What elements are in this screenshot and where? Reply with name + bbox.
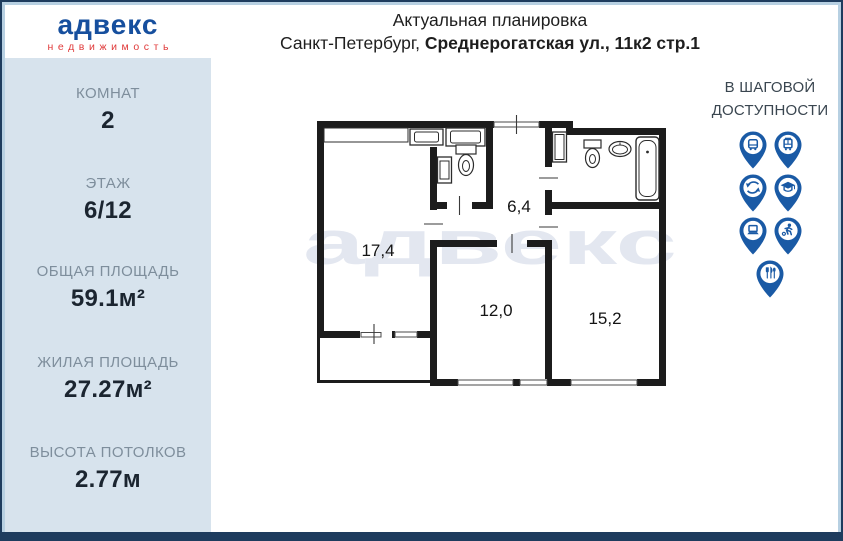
stat-total-area-label: ОБЩАЯ ПЛОЩАДЬ xyxy=(5,263,211,280)
toilet-symbol xyxy=(584,140,601,168)
logo-subtitle-text: недвижимость xyxy=(5,41,211,53)
address-line: Санкт-Петербург, Среднерогатская ул., 11… xyxy=(225,33,755,54)
stat-living-area: ЖИЛАЯ ПЛОЩАДЬ 27.27м² xyxy=(5,354,211,404)
tram-icon xyxy=(772,130,804,170)
stat-floor-value: 6/12 xyxy=(5,197,211,225)
stat-ceiling-height: ВЫСОТА ПОТОЛКОВ 2.77м xyxy=(5,444,211,494)
washing-machine-symbol xyxy=(438,157,452,183)
address-street: Среднерогатская ул., 11к2 стр.1 xyxy=(425,33,700,53)
page-title: Актуальная планировка xyxy=(230,10,750,31)
hall-area-label: 6,4 xyxy=(507,197,531,216)
stat-rooms-value: 2 xyxy=(5,107,211,135)
nearby-title-line2: ДОСТУПНОСТИ xyxy=(712,99,829,122)
sidebar: адвекс недвижимость КОМНАТ 2 ЭТАЖ 6/12 О… xyxy=(5,5,211,534)
logo-brand-text: адвекс xyxy=(5,11,211,39)
pin-row xyxy=(754,259,786,299)
stat-ceiling-height-value: 2.77м xyxy=(5,466,211,494)
laptop-icon xyxy=(737,216,769,256)
nearby-title: В ШАГОВОЙ ДОСТУПНОСТИ xyxy=(712,76,829,122)
address-city: Санкт-Петербург, xyxy=(280,33,425,53)
room2-area-label: 12,0 xyxy=(479,301,512,320)
bottom-accent-bar xyxy=(2,532,841,539)
school-icon xyxy=(772,173,804,213)
room1-area-label: 17,4 xyxy=(361,241,394,260)
stat-total-area-value: 59.1м² xyxy=(5,285,211,313)
floorplan: адвекс xyxy=(300,112,680,395)
bus-icon xyxy=(737,130,769,170)
stat-living-area-value: 27.27м² xyxy=(5,376,211,404)
room3-area-label: 15,2 xyxy=(588,309,621,328)
stat-living-area-label: ЖИЛАЯ ПЛОЩАДЬ xyxy=(5,354,211,371)
pin-row xyxy=(737,173,804,213)
wardrobe-symbol xyxy=(410,129,443,145)
wardrobe-symbol xyxy=(446,128,485,146)
stat-floor: ЭТАЖ 6/12 xyxy=(5,175,211,225)
stat-total-area: ОБЩАЯ ПЛОЩАДЬ 59.1м² xyxy=(5,263,211,313)
stat-rooms-label: КОМНАТ xyxy=(5,85,211,102)
metro-icon xyxy=(737,173,769,213)
pin-row xyxy=(737,130,804,170)
restaurant-icon xyxy=(754,259,786,299)
nearby-section: В ШАГОВОЙ ДОСТУПНОСТИ xyxy=(700,76,840,299)
cabinet-symbol xyxy=(553,132,567,162)
nearby-title-line1: В ШАГОВОЙ xyxy=(712,76,829,99)
balcony-outline xyxy=(319,338,435,382)
stat-floor-label: ЭТАЖ xyxy=(5,175,211,192)
sports-icon xyxy=(772,216,804,256)
bathtub-symbol xyxy=(636,137,659,200)
closet-strip-symbol xyxy=(324,128,408,142)
logo: адвекс недвижимость xyxy=(5,5,211,58)
sink-symbol xyxy=(609,142,631,157)
stat-ceiling-height-label: ВЫСОТА ПОТОЛКОВ xyxy=(5,444,211,461)
pin-row xyxy=(737,216,804,256)
toilet-symbol xyxy=(456,145,476,176)
nearby-pins xyxy=(737,130,804,299)
page: адвекс недвижимость КОМНАТ 2 ЭТАЖ 6/12 О… xyxy=(0,0,843,541)
stat-rooms: КОМНАТ 2 xyxy=(5,85,211,135)
